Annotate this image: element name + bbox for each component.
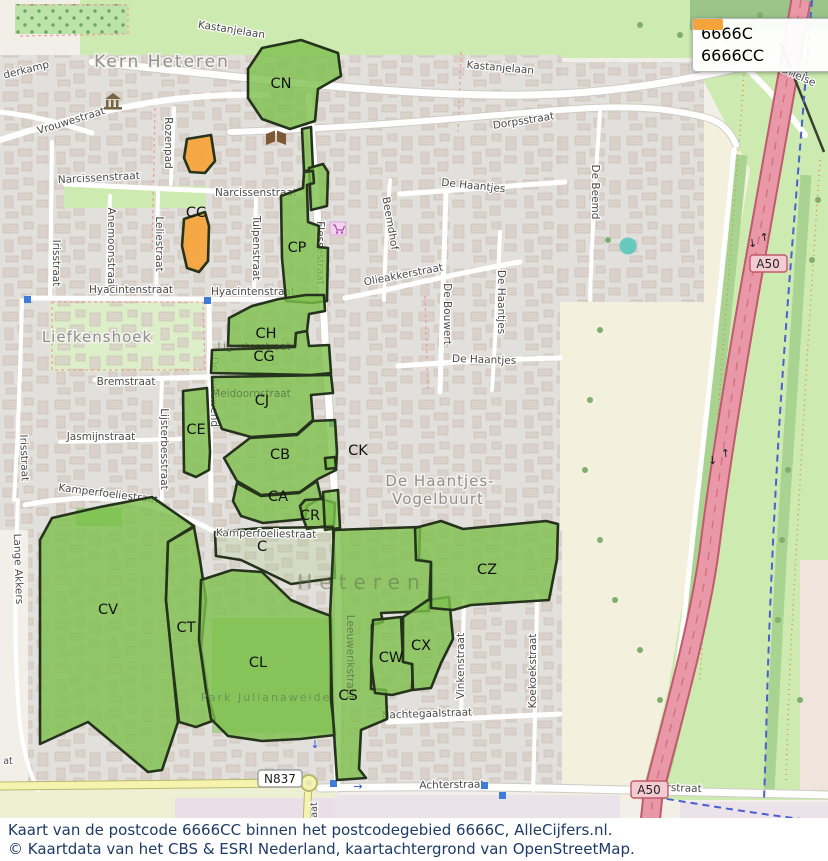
- street-label-irisstraat-1: Irisstraat: [50, 240, 62, 287]
- street-label-meidoornstraat: Meidoornstraat: [211, 388, 291, 400]
- region-label-cl: CL: [249, 655, 267, 671]
- region-label-cw: CW: [379, 650, 403, 666]
- street-label-fragment-at: at: [3, 756, 13, 767]
- region-cn-strip[interactable]: [302, 127, 313, 171]
- region-label-cz: CZ: [477, 562, 497, 578]
- region-label-cc: CC: [186, 205, 206, 221]
- street-label-lange-akkers: Lange Akkers: [11, 533, 25, 604]
- street-label-jasmijnstraat: Jasmijnstraat: [66, 431, 136, 443]
- street-label-de-haantjes-3: De Haantjes: [452, 353, 517, 367]
- badge-a50-top-text: A50: [756, 257, 779, 271]
- region-label-cg: CG: [253, 349, 274, 365]
- caption-line1: Kaart van de postcode 6666CC binnen het …: [8, 821, 828, 840]
- street-label-bremstraat: Bremstraat: [97, 376, 156, 388]
- retail-bottomright: [680, 802, 828, 818]
- badge-n837: N837: [258, 770, 302, 787]
- region-label-cn: CN: [271, 76, 292, 92]
- svg-text:↑: ↑: [720, 447, 731, 461]
- street-label-anemoonstraat: Anemoonstraat: [105, 208, 117, 289]
- badge-a50-bottom-text: A50: [637, 783, 660, 797]
- svg-text:↓: ↓: [310, 738, 319, 751]
- region-cc-north[interactable]: [184, 135, 215, 173]
- region-label-c: C: [257, 539, 267, 555]
- place-label-vogelbuurt-2: Vogelbuurt: [392, 490, 484, 508]
- badge-a50-bottom: A50: [631, 781, 668, 798]
- region-label-ca: CA: [268, 489, 288, 505]
- region-label-cs: CS: [338, 688, 357, 704]
- region-label-cp: CP: [288, 240, 307, 256]
- street-label-hyacintenstraat-2: Hyacintenstraat: [211, 286, 295, 298]
- street-label-koekoekstraat: Koekoekstraat: [527, 634, 539, 709]
- svg-text:↓: ↓: [707, 454, 718, 468]
- street-label-fragment-aat: aat: [309, 802, 320, 818]
- region-label-cj: CJ: [255, 393, 269, 409]
- place-label-liefkenshoek: Liefkenshoek: [42, 328, 152, 346]
- pond: [620, 238, 637, 255]
- street-label-rozenpad: Rozenpad: [162, 117, 174, 169]
- place-label-park-julianaweide: Park Julianaweide: [201, 691, 332, 704]
- region-label-ch: CH: [255, 326, 276, 342]
- region-label-cv: CV: [98, 602, 118, 618]
- region-ck[interactable]: [325, 457, 336, 469]
- badge-a50-top: A50: [750, 255, 787, 272]
- street-label-lijsterbesstraat: Lijsterbesstraat: [158, 408, 170, 490]
- region-label-ck: CK: [348, 443, 368, 459]
- street-label-leliestraat: Leliestraat: [153, 216, 165, 271]
- region-label-cx: CX: [411, 638, 431, 654]
- place-label-heteren: Heteren: [297, 570, 426, 594]
- street-label-de-haantjes-2: De Haantjes: [495, 270, 507, 334]
- map[interactable]: Kastanjelaan Kastanjelaan Dorpsstraat Dr…: [0, 0, 828, 818]
- svg-text:→: →: [353, 780, 362, 793]
- place-label-vogelbuurt-1: De Haantjes-: [385, 472, 494, 490]
- street-label-vinkenstraat: Vinkenstraat: [455, 633, 467, 699]
- place-label-kern-heteren: Kern Heteren: [94, 52, 230, 72]
- caption-line2: © Kaartdata van het CBS & ESRI Nederland…: [8, 840, 828, 859]
- region-cc[interactable]: [182, 212, 209, 272]
- street-label-de-beemd: De Beemd: [589, 165, 601, 220]
- region-label-cr: CR: [300, 508, 320, 524]
- street-label-irisstraat-2: Irisstraat: [17, 434, 31, 481]
- allotment-east: [800, 560, 828, 790]
- street-label-leeuwerikstraat: Leeuwerikstraat: [344, 615, 356, 700]
- street-label-de-bouwert: De Bouwert: [441, 283, 453, 345]
- supermarket-icon: [330, 222, 346, 235]
- svg-text:↑: ↑: [759, 230, 770, 244]
- orchard-topleft-dots: [15, 4, 127, 34]
- region-connector[interactable]: [323, 490, 340, 530]
- caption: Kaart van de postcode 6666CC binnen het …: [0, 818, 828, 861]
- legend-item-6666cc: 6666CC: [701, 48, 827, 64]
- region-label-ce: CE: [186, 422, 205, 438]
- legend-label-6666cc: 6666CC: [701, 48, 764, 64]
- street-label-achterstraat-1: Achterstraat: [419, 778, 484, 791]
- region-label-ct: CT: [177, 620, 196, 636]
- svg-text:↓: ↓: [747, 236, 758, 250]
- region-label-cb: CB: [270, 447, 290, 463]
- badge-n837-text: N837: [264, 772, 296, 786]
- map-legend: 6666C 6666CC: [692, 18, 828, 72]
- legend-swatch-6666cc-svg: [693, 19, 723, 30]
- retail-bottomcenter: [335, 795, 620, 818]
- street-label-hyacintenstraat-1: Hyacintenstraat: [89, 284, 173, 296]
- street-label-tulpenstraat: Tulpenstraat: [250, 214, 262, 280]
- legend-swatch-6666cc: [693, 19, 723, 30]
- page: Kastanjelaan Kastanjelaan Dorpsstraat Dr…: [0, 0, 828, 861]
